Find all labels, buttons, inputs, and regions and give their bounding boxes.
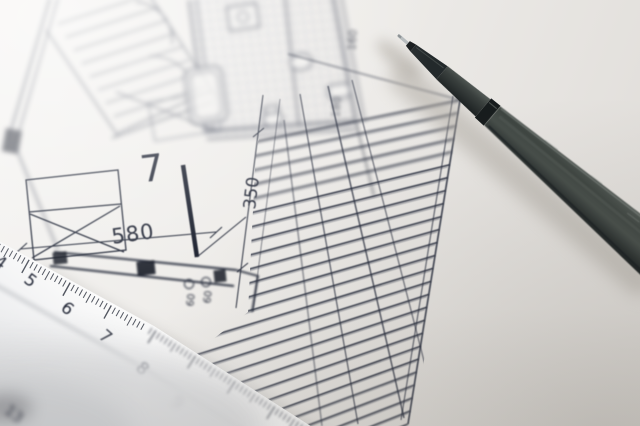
bathtub <box>183 65 228 126</box>
deck-board-line <box>127 100 460 168</box>
stair-tread <box>66 7 158 37</box>
deck-board-line <box>110 243 437 337</box>
stair-tread <box>58 0 150 24</box>
shower-tray <box>226 3 259 31</box>
wardrobe <box>26 170 126 260</box>
dim-label-350: 350 <box>240 176 264 211</box>
bathroom <box>183 0 376 144</box>
photo-architectural-plan: 160 180 <box>0 0 640 426</box>
dim-label-580: 580 <box>110 219 156 249</box>
dim-label-160: 160 <box>345 29 359 51</box>
pen-shadow <box>360 34 640 301</box>
door-leaf <box>183 165 197 257</box>
deck-board-line <box>125 113 458 183</box>
plan-photo-svg: 160 180 <box>0 0 640 426</box>
stair-tread <box>74 20 166 50</box>
tile-line <box>184 27 362 41</box>
deck-board-line <box>112 230 439 322</box>
room-number: 7 <box>138 146 167 192</box>
dim-label-60a: 60 <box>185 293 197 307</box>
stair-tread <box>90 47 182 77</box>
dim-label-60b: 60 <box>202 290 214 304</box>
deck-board-line <box>111 219 439 309</box>
stair-tread <box>82 34 174 64</box>
deck-board-line <box>108 245 435 339</box>
stair-tread <box>98 60 190 90</box>
